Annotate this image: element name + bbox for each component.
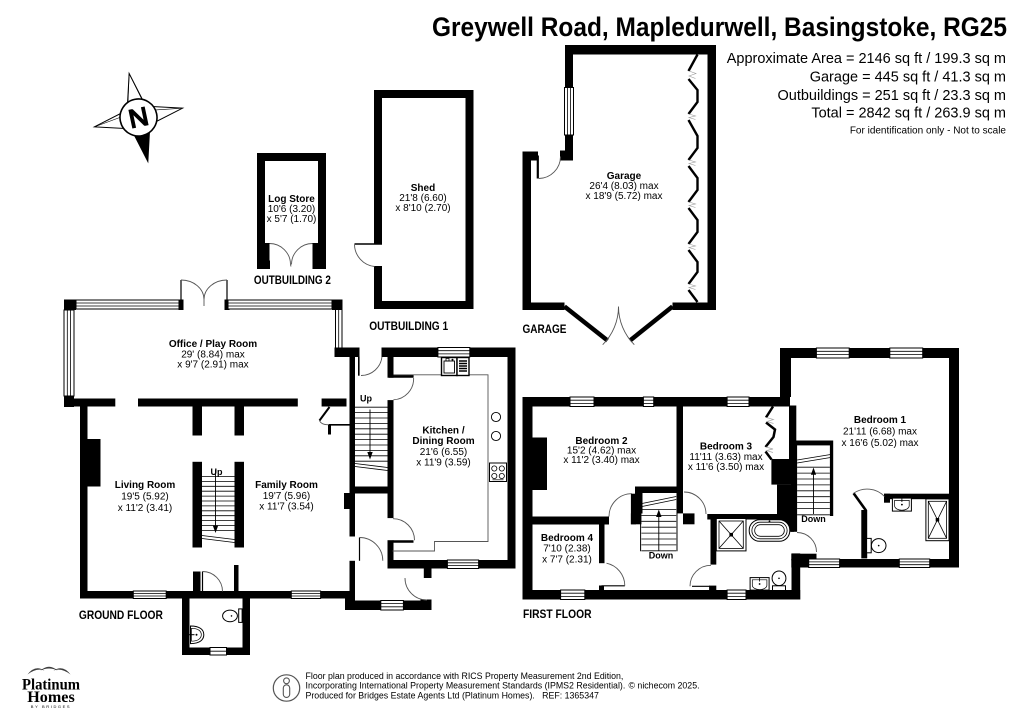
svg-text:Kitchen /: Kitchen /	[422, 426, 464, 437]
svg-text:x 11'2 (3.40) max: x 11'2 (3.40) max	[563, 455, 639, 466]
svg-text:Down: Down	[649, 551, 674, 561]
svg-text:Family Room: Family Room	[255, 480, 318, 491]
svg-text:19'5 (5.92): 19'5 (5.92)	[121, 492, 169, 503]
svg-text:Floor plan produced in accorda: Floor plan produced in accordance with R…	[306, 671, 624, 681]
svg-text:Office / Play Room: Office / Play Room	[169, 339, 257, 350]
svg-text:21'11 (6.68) max: 21'11 (6.68) max	[843, 427, 917, 438]
svg-text:Outbuildings = 251 sq ft / 23.: Outbuildings = 251 sq ft / 23.3 sq m	[777, 88, 1006, 104]
svg-text:x 8'10 (2.70): x 8'10 (2.70)	[395, 203, 450, 214]
svg-text:OUTBUILDING 2: OUTBUILDING 2	[254, 275, 331, 287]
svg-text:Incorporating International Pr: Incorporating International Property Mea…	[306, 681, 626, 691]
svg-text:Living Room: Living Room	[115, 480, 176, 491]
svg-text:Down: Down	[801, 514, 826, 524]
svg-text:x 11'9 (3.59): x 11'9 (3.59)	[416, 458, 471, 469]
svg-text:BY BRIDGES: BY BRIDGES	[31, 704, 71, 709]
svg-text:x 11'7 (3.54): x 11'7 (3.54)	[259, 502, 314, 513]
svg-text:7'10 (2.38): 7'10 (2.38)	[543, 544, 591, 555]
svg-text:Bedroom 3: Bedroom 3	[700, 441, 753, 452]
svg-text:OUTBUILDING 1: OUTBUILDING 1	[369, 321, 449, 333]
svg-text:Dining Room: Dining Room	[412, 436, 474, 447]
svg-text:x 5'7 (1.70): x 5'7 (1.70)	[267, 214, 317, 225]
svg-text:Produced for Bridges Estate Ag: Produced for Bridges Estate Agents Ltd (…	[306, 690, 599, 700]
svg-text:x 9'7 (2.91) max: x 9'7 (2.91) max	[177, 359, 248, 370]
svg-text:Total = 2842 sq ft / 263.9 sq: Total = 2842 sq ft / 263.9 sq m	[811, 106, 1006, 122]
svg-text:Greywell Road, Mapledurwell, B: Greywell Road, Mapledurwell, Basingstoke…	[432, 12, 1007, 42]
svg-text:21'6 (6.55): 21'6 (6.55)	[420, 447, 468, 458]
svg-text:x 18'9 (5.72) max: x 18'9 (5.72) max	[586, 191, 663, 202]
svg-text:© nichecom 2025.: © nichecom 2025.	[629, 681, 700, 691]
svg-text:x 11'6 (3.50) max: x 11'6 (3.50) max	[688, 462, 764, 473]
svg-text:Bedroom 1: Bedroom 1	[854, 415, 907, 426]
svg-text:Up: Up	[360, 394, 372, 404]
svg-text:19'7 (5.96): 19'7 (5.96)	[263, 491, 311, 502]
svg-text:GROUND FLOOR: GROUND FLOOR	[79, 610, 164, 622]
svg-text:For identification only - Not: For identification only - Not to scale	[850, 126, 1007, 137]
svg-text:x 16'6 (5.02) max: x 16'6 (5.02) max	[842, 438, 919, 449]
svg-text:x 7'7 (2.31): x 7'7 (2.31)	[542, 555, 592, 566]
svg-text:Up: Up	[211, 467, 223, 477]
svg-text:Approximate Area = 2146 sq ft: Approximate Area = 2146 sq ft / 199.3 sq…	[727, 51, 1006, 67]
svg-text:Garage = 445 sq ft / 41.3 sq m: Garage = 445 sq ft / 41.3 sq m	[810, 70, 1006, 86]
svg-text:GARAGE: GARAGE	[523, 324, 567, 336]
svg-text:x 11'2 (3.41): x 11'2 (3.41)	[118, 503, 173, 514]
svg-text:FIRST FLOOR: FIRST FLOOR	[523, 609, 592, 621]
svg-text:Bedroom 4: Bedroom 4	[541, 533, 594, 544]
